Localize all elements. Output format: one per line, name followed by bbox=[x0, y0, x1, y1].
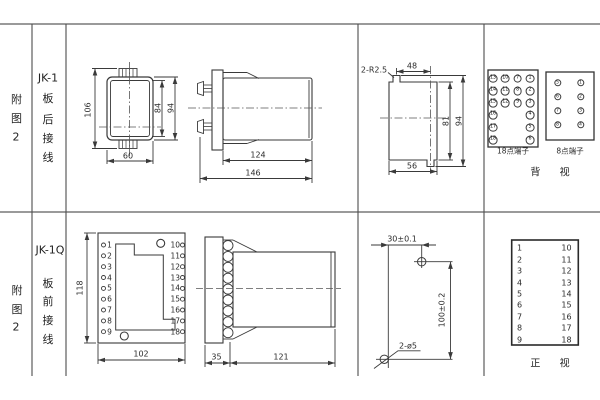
dim-label: 60 bbox=[123, 151, 133, 160]
terminal-number: 2 bbox=[107, 251, 112, 260]
table-terminal-number: 6 bbox=[517, 301, 522, 310]
dim-label: 118 bbox=[76, 280, 85, 295]
terminal-circle: 2 bbox=[526, 86, 535, 95]
dim-label: 124 bbox=[250, 151, 265, 160]
dim-label: 2-ø5 bbox=[399, 341, 417, 350]
dim-label: 2-R2.5 bbox=[361, 65, 387, 74]
terminal-circle: 1 bbox=[526, 74, 535, 83]
terminal-circle: 16 bbox=[489, 111, 498, 120]
terminal-circle: 8 bbox=[513, 86, 522, 95]
dim-label: 94 bbox=[166, 103, 175, 113]
terminal-number: 12 bbox=[171, 262, 181, 271]
table-terminal-number: 7 bbox=[517, 312, 522, 321]
jk1q-side-view-drawing bbox=[196, 237, 341, 367]
wiring-label-char: 接 bbox=[43, 130, 54, 146]
terminal-circle: 10 bbox=[501, 74, 510, 83]
terminal-number: 9 bbox=[107, 327, 112, 336]
technical-drawing-page: 附 图 2 JK-1 板 后 接 线 106 84 94 60 124 146 … bbox=[0, 0, 600, 400]
dim-label: 56 bbox=[407, 162, 417, 171]
model-label: JK-1Q bbox=[36, 244, 65, 257]
fig-label-char: 图 bbox=[11, 110, 22, 126]
dim-label: 48 bbox=[407, 61, 417, 70]
terminal-number: 16 bbox=[171, 306, 181, 315]
dim-label: 81 bbox=[442, 116, 451, 126]
wiring-label-char: 前 bbox=[43, 293, 54, 309]
terminal-circle: 9 bbox=[513, 99, 522, 108]
terminal-number: 11 bbox=[171, 251, 181, 260]
terminal-number: 4 bbox=[107, 273, 112, 282]
table-terminal-number: 14 bbox=[561, 289, 571, 298]
terminal-number: 5 bbox=[107, 284, 112, 293]
jk1-panel-cutout-drawing bbox=[380, 66, 466, 175]
table-terminal-number: 8 bbox=[517, 324, 522, 333]
fig-label-char: 2 bbox=[13, 131, 20, 144]
terminal-number: 18 bbox=[171, 327, 181, 336]
table-terminal-number: 18 bbox=[561, 335, 571, 344]
model-label: JK-1 bbox=[38, 72, 58, 85]
drawing-canvas bbox=[0, 0, 600, 400]
terminal-number: 3 bbox=[107, 262, 112, 271]
terminal-circle: 4 bbox=[526, 111, 535, 120]
view-label: 正 视 bbox=[530, 355, 577, 370]
table-terminal-number: 15 bbox=[561, 301, 571, 310]
jk1-front-view-drawing bbox=[92, 62, 178, 164]
dim-label: 121 bbox=[273, 353, 288, 362]
terminal-circle: 12 bbox=[501, 99, 510, 108]
view-label: 背 视 bbox=[530, 163, 577, 178]
terminal-block-label: 8点端子 bbox=[556, 145, 583, 156]
table-grid bbox=[0, 24, 600, 376]
wiring-label-char: 接 bbox=[43, 312, 54, 328]
dim-label: 146 bbox=[245, 169, 260, 178]
table-terminal-number: 5 bbox=[517, 289, 522, 298]
terminal-number: 6 bbox=[107, 295, 112, 304]
wiring-label-char: 板 bbox=[43, 90, 54, 106]
table-terminal-number: 2 bbox=[517, 255, 522, 264]
table-terminal-number: 17 bbox=[561, 324, 571, 333]
terminal-circle: 17 bbox=[489, 123, 498, 132]
dim-label: 30±0.1 bbox=[387, 235, 417, 244]
terminal-circle: 5 bbox=[526, 123, 535, 132]
table-terminal-number: 4 bbox=[517, 278, 522, 287]
table-terminal-number: 10 bbox=[561, 244, 571, 253]
dim-label: 106 bbox=[84, 102, 93, 117]
terminal-number: 7 bbox=[107, 306, 112, 315]
table-terminal-number: 11 bbox=[561, 255, 571, 264]
terminal-block-label: 18点端子 bbox=[497, 145, 529, 156]
terminal-circle: 3 bbox=[526, 99, 535, 108]
table-terminal-number: 12 bbox=[561, 267, 571, 276]
table-terminal-number: 16 bbox=[561, 312, 571, 321]
terminal-circle: 18 bbox=[489, 136, 498, 145]
terminal-number: 13 bbox=[171, 273, 181, 282]
table-terminal-number: 13 bbox=[561, 278, 571, 287]
terminal-number: 17 bbox=[171, 316, 181, 325]
dim-label: 102 bbox=[133, 350, 148, 359]
fig-label-char: 2 bbox=[13, 321, 20, 334]
fig-label-char: 图 bbox=[12, 301, 23, 317]
wiring-label-char: 线 bbox=[43, 331, 54, 347]
terminal-circle: 6 bbox=[526, 136, 535, 145]
terminal-circle: 7 bbox=[513, 74, 522, 83]
terminal-number: 1 bbox=[107, 241, 112, 250]
terminal-circle: 11 bbox=[501, 86, 510, 95]
dim-label: 100±0.2 bbox=[438, 293, 447, 328]
dim-label: 35 bbox=[211, 353, 221, 362]
dim-label: 94 bbox=[455, 116, 464, 126]
table-terminal-number: 1 bbox=[517, 244, 522, 253]
fig-label-char: 附 bbox=[12, 282, 23, 298]
wiring-label-char: 板 bbox=[43, 275, 54, 291]
terminal-number: 14 bbox=[171, 284, 181, 293]
wiring-label-char: 线 bbox=[43, 149, 54, 165]
wiring-label-char: 后 bbox=[43, 111, 54, 127]
terminal-circle: 14 bbox=[489, 86, 498, 95]
terminal-number: 8 bbox=[107, 316, 112, 325]
terminal-circle: 13 bbox=[489, 74, 498, 83]
terminal-number: 15 bbox=[171, 295, 181, 304]
terminal-number: 10 bbox=[171, 241, 181, 250]
fig-label-char: 附 bbox=[11, 91, 22, 107]
table-terminal-number: 9 bbox=[517, 335, 522, 344]
table-terminal-number: 3 bbox=[517, 267, 522, 276]
terminal-circle: 15 bbox=[489, 99, 498, 108]
jk1-side-view-drawing bbox=[188, 70, 322, 183]
dim-label: 84 bbox=[153, 103, 162, 113]
